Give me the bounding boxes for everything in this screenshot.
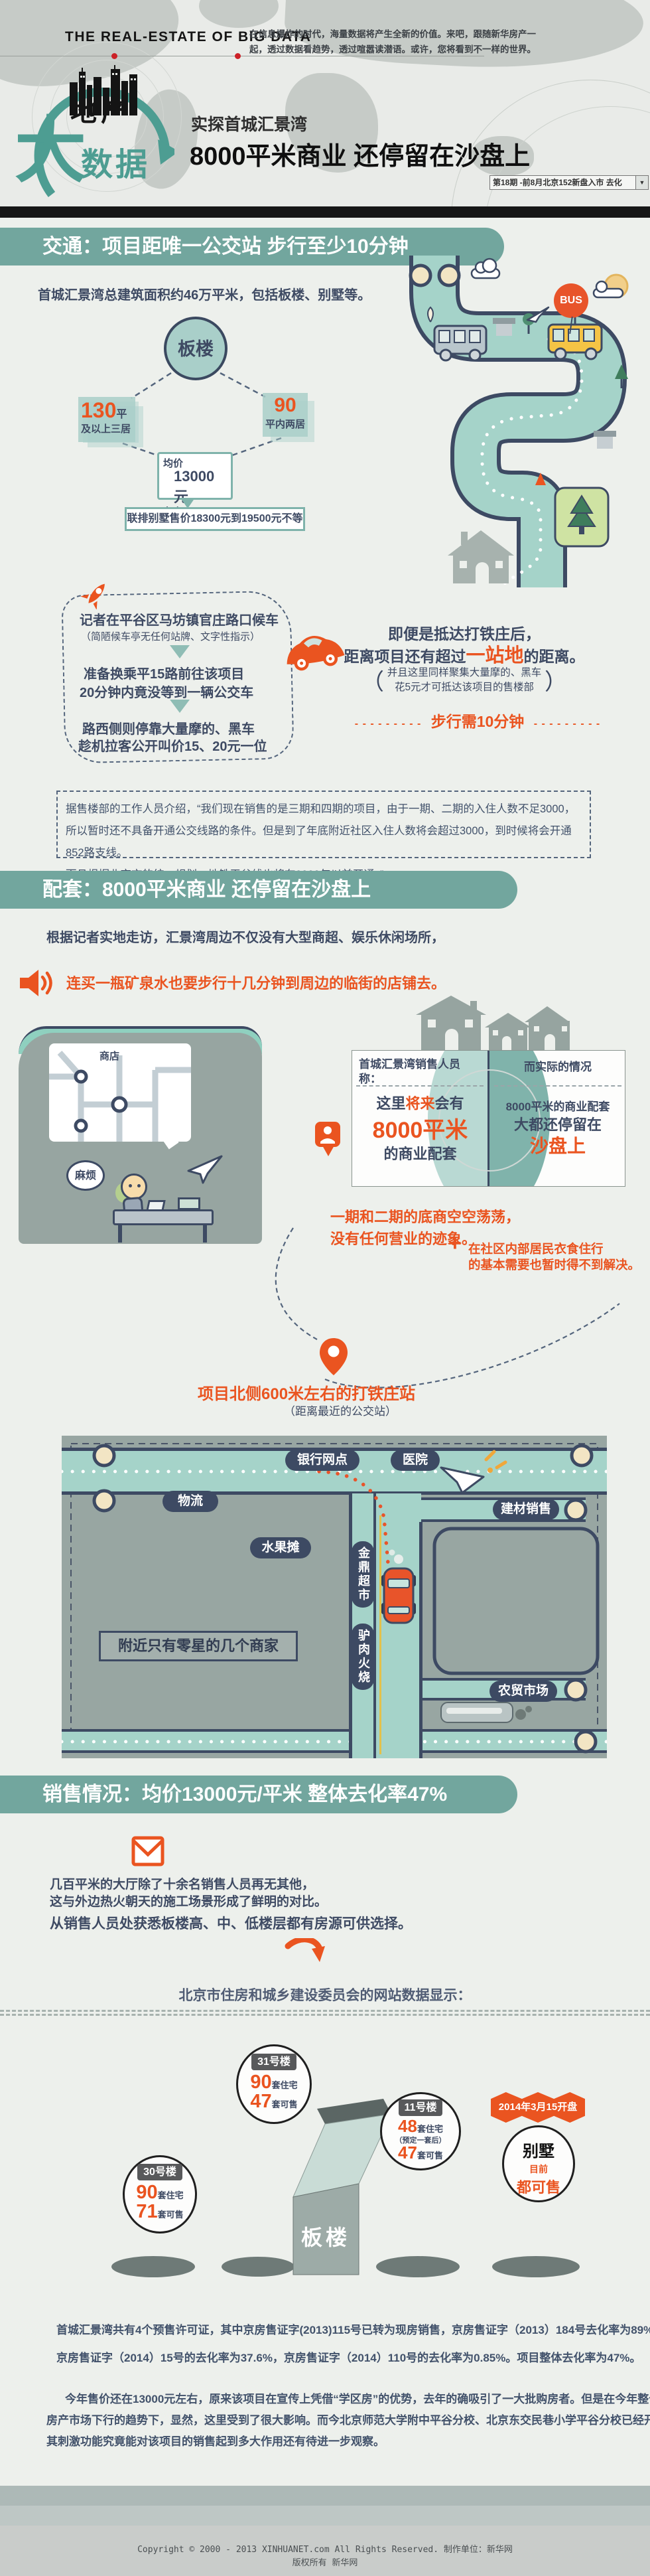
- journey-step3b: 趁机拉客公开叫价15、20元一位: [78, 735, 267, 755]
- paren-right: ）: [545, 664, 567, 696]
- masthead-intro-line1: 在信息爆炸的时代，海量数据将产生全新的价值。来吧，跟随新华房产一: [249, 27, 536, 40]
- villa-opening-flag: 2014年3月15开盘: [491, 2092, 585, 2123]
- road-map-illustration: [335, 256, 647, 587]
- claim-big-number: 8000平米: [352, 1112, 488, 1144]
- masthead-intro-line2: 起，透过数据看趋势，透过喧嚣读潜语。或许，您将看到不一样的世界。: [249, 42, 536, 55]
- building-31-avail: 47: [250, 2091, 271, 2112]
- claim-divider: [356, 1085, 484, 1087]
- building-31-total: 90: [250, 2072, 271, 2093]
- person-eye: [129, 1184, 132, 1187]
- speaker-icon: [19, 968, 54, 998]
- footer-band-2: [0, 2506, 650, 2526]
- unit-90-number: 90: [274, 394, 296, 416]
- issue-dropdown[interactable]: 第18期 -前8月北京152新盘入市 去化 ▼: [489, 175, 649, 190]
- arrival-parenthetical: （ 并且这里同样聚集大量摩的、黑车 花5元才可抵达该项目的售楼部 ）: [361, 664, 567, 696]
- person-eye: [137, 1184, 141, 1187]
- copyright-line1: Copyright © 2000 - 2013 XINHUANET.com Al…: [0, 2542, 650, 2555]
- claim-mid: 会有: [435, 1095, 464, 1112]
- claim-line: 这里将来会有: [352, 1092, 488, 1113]
- closing-para-line1: 今年售价还在13000元左右，原来该项目在宣传上凭借“学区房”的优势，去年的确吸…: [65, 2389, 635, 2406]
- claim-vs-fact-panel: 首城汇景湾销售人员 称： 这里将来会有 8000平米 的商业配套 而实际的情况 …: [352, 1050, 625, 1187]
- houses-silhouette: [415, 994, 570, 1050]
- fact-highlight: 沙盘上: [489, 1132, 625, 1158]
- map-label-bank: 银行网点: [285, 1450, 359, 1471]
- journey-step2a: 准备换乘平15路前往该项目: [84, 663, 244, 682]
- curved-arrow-icon: [284, 1938, 326, 1965]
- sales-para1-line1: 几百平米的大厅除了十余名销售人员再无其他，: [50, 1874, 314, 1892]
- claim-title-line2: 称：: [359, 1069, 381, 1086]
- desk-leg: [118, 1225, 122, 1243]
- permit-para-line2: 京房售证字（2014）15号的去化率为37.6%，京房售证字（2014）110号…: [56, 2348, 633, 2365]
- empty-shops-line1: 一期和二期的底商空空荡荡，: [330, 1205, 520, 1227]
- tower-label: 板楼: [292, 2221, 359, 2251]
- down-arrow-icon: [170, 700, 190, 713]
- data-source-title: 北京市住房和城乡建设委员会的网站数据显示：: [0, 1985, 650, 2005]
- unit-90-desc: 平内两居: [265, 417, 305, 431]
- average-price-callout: 均价 13000元 左右: [157, 452, 233, 500]
- paper-plane-icon: [186, 1154, 224, 1187]
- unit-type-130: 130平 及以上三居: [78, 397, 145, 450]
- unit-type-90: 90 平内两居: [263, 393, 316, 446]
- journey-step1-note: （简陋候车亭无任何站牌、文字性指示）: [81, 629, 260, 643]
- arrival-line2-post: 的距离。: [524, 648, 585, 665]
- building-11-avail: 47: [398, 2143, 417, 2162]
- building-30-total-unit: 套住宅: [158, 2190, 184, 2200]
- masthead: THE REAL-ESTATE OF BIG DATA 在信息爆炸的时代，海量数…: [0, 0, 650, 206]
- bus-balloon: BUS: [554, 283, 588, 318]
- fact-line1: 8000平米的商业配套: [489, 1097, 625, 1114]
- street-map: [62, 1436, 607, 1758]
- sales-para2: 从销售人员处获悉板楼高、中、低楼层都有房源可供选择。: [50, 1913, 412, 1933]
- unit-130-unit: 平: [116, 409, 127, 420]
- logo-text-big: 大: [15, 114, 86, 187]
- paren-left: （: [361, 664, 384, 696]
- cloud-icon: [472, 259, 499, 278]
- map-label-supermarket: 金鼎超市: [352, 1541, 374, 1608]
- issue-dropdown-label[interactable]: 第18期 -前8月北京152新盘入市 去化: [490, 176, 635, 189]
- station-name: 项目北侧600米左右的打铁庄站: [198, 1381, 415, 1404]
- journey-step1: 记者在平谷区马坊镇官庄路口候车: [80, 609, 279, 629]
- building-11-total-unit: 套住宅: [417, 2124, 443, 2134]
- worldmap-shape: [199, 0, 279, 28]
- permit-para-line1: 首城汇景湾共有4个预售许可证，其中京房售证字(2013)115号已转为现房销售，…: [56, 2320, 633, 2337]
- page-title: 8000平米商业 还停留在沙盘上: [190, 135, 530, 172]
- dropdown-arrow-icon[interactable]: ▼: [635, 176, 648, 189]
- down-arrow-icon: [170, 645, 190, 658]
- desk-box: [178, 1197, 200, 1210]
- closing-para-line3: 其刺激功能究竟能对该项目的销售起到多大作用还有待进一步观察。: [46, 2432, 637, 2449]
- building-31-avail-unit: 套可售: [272, 2099, 298, 2109]
- copyright-line2: 版权所有 新华网: [0, 2555, 650, 2568]
- building-11-avail-unit: 套可售: [417, 2151, 443, 2160]
- shop-label: 商店: [99, 1049, 119, 1063]
- facilities-intro-text: 根据记者实地走访，汇景湾周边不仅没有大型商超、娱乐休闲场所，: [46, 927, 444, 946]
- claim-highlight: 将来: [405, 1095, 434, 1112]
- sales-para1-line2: 这与外边热火朝天的施工场景形成了鲜明的对比。: [50, 1892, 327, 1910]
- walk-time-note: - - - - - - - - - 步行需10分钟 - - - - - - - …: [332, 709, 623, 731]
- title-divider-bar: [0, 206, 650, 218]
- red-dot: [235, 53, 241, 59]
- villa-status2: 都可售: [504, 2176, 573, 2197]
- closing-para-line2: 房产市场下行的趋势下，显然，这里受到了很大影响。而今北京师范大学附中平谷分校、北…: [46, 2411, 637, 2427]
- map-label-hospital: 医院: [391, 1450, 440, 1471]
- building-30-total: 90: [136, 2182, 157, 2203]
- map-note-box: 附近只有零星的几个商家: [99, 1631, 298, 1661]
- desk: [113, 1209, 214, 1225]
- walk-time-text: 步行需10分钟: [431, 713, 525, 730]
- unit-130-number: 130: [81, 398, 116, 422]
- map-label-donkey-shop: 驴肉火烧: [352, 1624, 374, 1690]
- bus-shelter-icon: [594, 431, 616, 449]
- map-label-logistics: 物流: [162, 1491, 218, 1512]
- building-11-circle: 11号楼 48套住宅 （预定一套后） 47套可售: [380, 2092, 461, 2170]
- sun-icon: [594, 275, 627, 297]
- house-icon: [448, 530, 514, 583]
- building-30-circle: 30号楼 90套住宅 71套可售: [123, 2155, 197, 2234]
- villa-name: 别墅: [504, 2138, 573, 2161]
- quote-line2: 所以暂时还不具备开通公交线路的条件。但是到了年底附近社区入住人数将会超过3000…: [66, 820, 582, 864]
- envelope-icon: [131, 1836, 164, 1866]
- rocket-icon: [81, 579, 111, 609]
- trouble-bubble: 麻烦: [66, 1160, 105, 1191]
- bus-shelter-icon: [493, 318, 515, 336]
- building-31-total-unit: 套住宅: [272, 2080, 298, 2090]
- villa-price-callout: 联排别墅售价18300元到19500元不等: [125, 507, 305, 531]
- station-note: （距离最近的公交站）: [284, 1402, 397, 1418]
- arrival-note1: 并且这里同样聚集大量摩的、黑车: [384, 666, 545, 680]
- sales-office-quote-box: 据售楼部的工作人员介绍，“我们现在销售的是三期和四期的项目，由于一期、二期的入住…: [56, 791, 591, 858]
- station-pin-icon: [318, 1337, 349, 1378]
- journey-step3a: 路西侧则停靠大量摩的、黑车: [82, 718, 255, 737]
- building-30-avail: 71: [136, 2201, 157, 2222]
- building-31-circle: 31号楼 90套住宅 47套可售: [236, 2044, 312, 2124]
- double-dash-divider: [0, 2010, 650, 2016]
- unit-130-desc: 及以上三居: [81, 421, 133, 435]
- infographic-page: THE REAL-ESTATE OF BIG DATA 在信息爆炸的时代，海量数…: [0, 0, 650, 2576]
- park-icon: [555, 488, 608, 546]
- building-11-total: 48: [398, 2116, 417, 2136]
- fact-divider: [494, 1085, 621, 1087]
- villa-status1: 目前: [504, 2162, 573, 2176]
- walk-dash-left: - - - - - - - - -: [355, 718, 422, 729]
- facilities-highlight-text: 连买一瓶矿泉水也要步行十几分钟到周边的临街的店铺去。: [66, 972, 446, 993]
- claim-post: 的商业配套: [352, 1142, 488, 1164]
- building-type-bubble: 板楼: [164, 317, 227, 380]
- person-head: [121, 1174, 147, 1200]
- page-subtitle: 实探首城汇景湾: [191, 112, 307, 135]
- building-31-name: 31号楼: [251, 2054, 296, 2070]
- building-11-name: 11号楼: [399, 2099, 443, 2116]
- map-label-market: 农贸市场: [489, 1681, 557, 1702]
- walk-dash-right: - - - - - - - - -: [534, 718, 601, 729]
- fact-title: 而实际的情况: [489, 1057, 625, 1074]
- arrival-note2: 花5元才可抵达该项目的售楼部: [384, 680, 545, 695]
- footer-band-1: [0, 2486, 650, 2506]
- arrival-line2-pre: 距离项目还有超过: [344, 648, 466, 665]
- traffic-intro-text: 首城汇景湾总建筑面积约46万平米，包括板楼、别墅等。: [38, 284, 371, 303]
- quote-line1: 据售楼部的工作人员介绍，“我们现在销售的是三期和四期的项目，由于一期、二期的入住…: [66, 798, 582, 820]
- logo-text-data: 数据: [81, 138, 150, 185]
- building-30-name: 30号楼: [137, 2164, 182, 2180]
- villa-circle: 别墅 目前 都可售: [502, 2125, 575, 2202]
- building-30-avail-unit: 套可售: [158, 2210, 184, 2220]
- street-sketch: [49, 1043, 191, 1142]
- desk-leg: [203, 1225, 207, 1243]
- map-label-fruit: 水果摊: [250, 1537, 311, 1558]
- journey-step2b: 20分钟内竟没等到一辆公交车: [80, 682, 253, 701]
- claim-pre: 这里: [376, 1095, 405, 1112]
- section-facilities-banner: 配套：8000平米商业 还停留在沙盘上: [0, 871, 517, 909]
- salesperson-pin-icon: [314, 1120, 343, 1158]
- section-sales-banner: 销售情况：均价13000元/平米 整体去化率47%: [0, 1776, 517, 1813]
- map-label-materials: 建材销售: [493, 1499, 559, 1520]
